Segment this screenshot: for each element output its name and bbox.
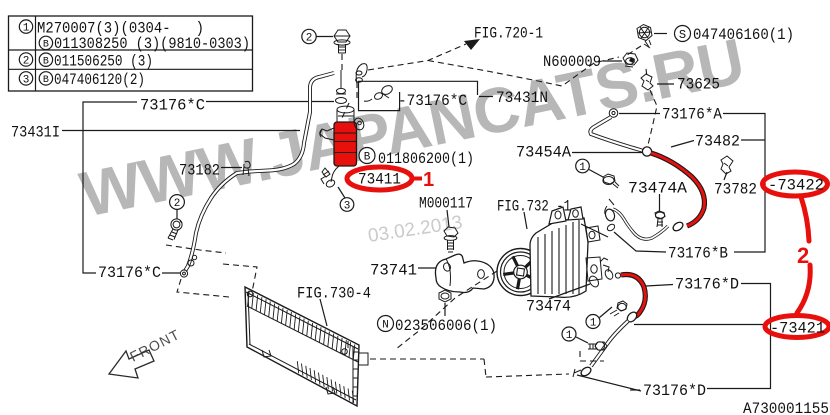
svg-text:73411: 73411 xyxy=(358,171,401,189)
svg-text:73176*D: 73176*D xyxy=(643,382,706,400)
svg-text:M000117: M000117 xyxy=(419,195,473,213)
svg-text:N: N xyxy=(382,320,389,332)
svg-text:FIG.732 -1: FIG.732 -1 xyxy=(497,198,571,216)
svg-text:73454A: 73454A xyxy=(516,144,571,162)
svg-text:B: B xyxy=(364,152,371,164)
svg-text:047406160(1): 047406160(1) xyxy=(693,26,794,44)
svg-text:B: B xyxy=(43,40,49,51)
svg-text:73176*D: 73176*D xyxy=(675,276,739,294)
svg-text:023506006(1): 023506006(1) xyxy=(395,317,497,335)
svg-text:2: 2 xyxy=(797,243,809,268)
svg-text:73482: 73482 xyxy=(695,133,740,151)
svg-text:1: 1 xyxy=(423,169,434,191)
svg-text:1: 1 xyxy=(23,23,30,35)
svg-text:-73176*C: -73176*C xyxy=(398,92,467,110)
svg-text:FIG.730-4: FIG.730-4 xyxy=(297,285,371,303)
svg-text:1: 1 xyxy=(590,318,597,330)
svg-text:1: 1 xyxy=(566,330,573,342)
svg-text:73182: 73182 xyxy=(179,162,220,180)
svg-text:047406120(2): 047406120(2) xyxy=(54,71,145,89)
svg-text:FIG.720-1: FIG.720-1 xyxy=(474,25,543,43)
svg-text:S: S xyxy=(679,28,686,42)
svg-text:2: 2 xyxy=(306,33,313,45)
svg-text:73176*A: 73176*A xyxy=(662,106,722,124)
svg-text:73741: 73741 xyxy=(370,262,417,280)
svg-text:73474A: 73474A xyxy=(628,180,687,198)
svg-text:73474: 73474 xyxy=(526,298,571,316)
svg-text:73176*C: 73176*C xyxy=(140,97,205,115)
svg-text:-73422: -73422 xyxy=(768,177,824,195)
svg-text:73431N: 73431N xyxy=(496,89,548,107)
svg-text:3: 3 xyxy=(344,201,351,213)
svg-text:-73421: -73421 xyxy=(770,320,825,338)
svg-text:011308250 (3)(9810-0303): 011308250 (3)(9810-0303) xyxy=(54,35,250,53)
svg-text:3: 3 xyxy=(23,74,30,86)
svg-text:73431I: 73431I xyxy=(11,124,60,142)
svg-text:2: 2 xyxy=(174,198,181,210)
svg-text:2: 2 xyxy=(23,56,30,68)
svg-text:011806200(1): 011806200(1) xyxy=(378,150,474,168)
svg-text:73625: 73625 xyxy=(677,76,720,94)
svg-text:73782: 73782 xyxy=(714,181,757,199)
svg-text:73176*C: 73176*C xyxy=(98,264,161,282)
svg-text:B: B xyxy=(43,75,49,86)
svg-text:A730001155: A730001155 xyxy=(743,400,829,415)
svg-text:B: B xyxy=(43,56,49,67)
svg-text:1: 1 xyxy=(579,162,586,174)
svg-text:N600009: N600009 xyxy=(543,53,601,71)
svg-text:73176*B: 73176*B xyxy=(668,245,728,263)
svg-text:011506250 (3): 011506250 (3) xyxy=(54,52,153,70)
